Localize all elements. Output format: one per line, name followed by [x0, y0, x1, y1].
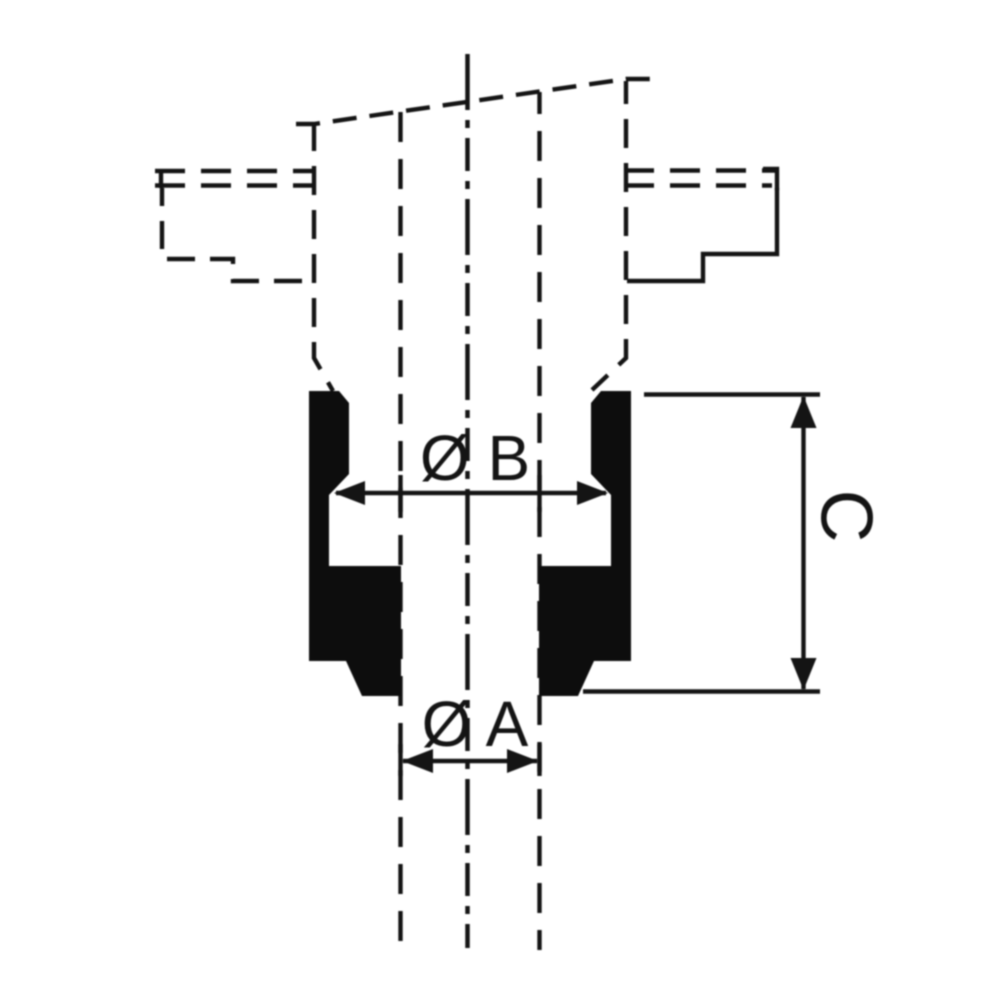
svg-text:Ø B: Ø B: [420, 422, 530, 494]
svg-text:Ø A: Ø A: [422, 688, 529, 760]
svg-text:C: C: [806, 490, 887, 543]
